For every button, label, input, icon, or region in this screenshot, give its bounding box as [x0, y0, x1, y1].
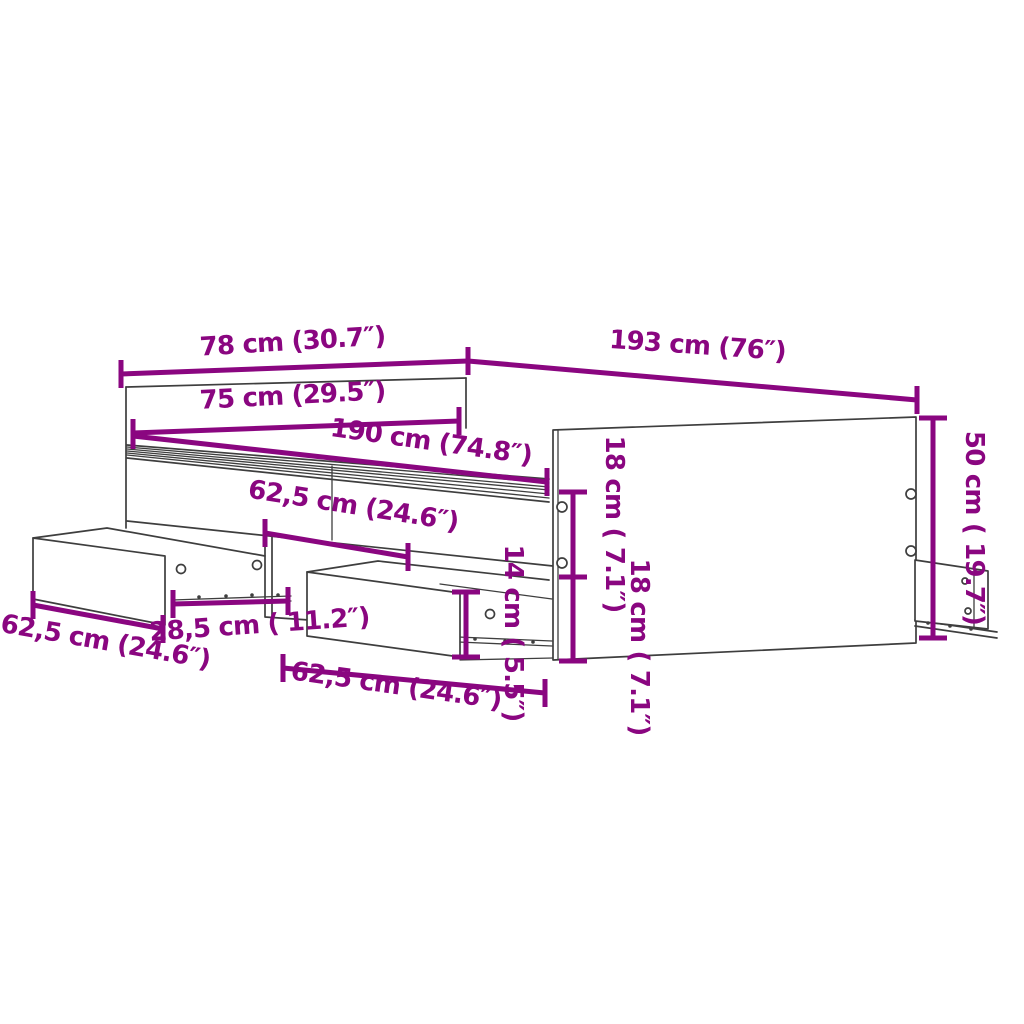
- rail-screw: [926, 621, 930, 625]
- rail-screw: [969, 627, 973, 631]
- dim-label-upper-drawer-width: 62,5 cm (24.6″): [246, 475, 460, 538]
- dim-label-inner-width: 75 cm (29.5″): [199, 376, 386, 416]
- dim-line-frame-length: [468, 361, 917, 400]
- runner-screw: [276, 593, 280, 597]
- runner-screw: [531, 640, 535, 644]
- rail-screw: [948, 624, 952, 628]
- bed-frame-diagram: 78 cm (30.7″) 193 cm (76″) 75 cm (29.5″)…: [0, 0, 1024, 1024]
- dim-line-headboard-width: [121, 361, 468, 374]
- runner-screw: [224, 594, 228, 598]
- product-dimension-diagram: 78 cm (30.7″) 193 cm (76″) 75 cm (29.5″)…: [0, 0, 1024, 1024]
- dim-label-under-bed-height: 18 cm ( 7.1″): [624, 559, 654, 736]
- runner-screw: [473, 637, 477, 641]
- assembly-hole: [557, 502, 567, 512]
- dim-label-frame-length: 193 cm (76″): [608, 325, 787, 367]
- left-drawer-front: [33, 538, 165, 625]
- assembly-hole: [557, 558, 567, 568]
- center-drawer-hole: [486, 610, 495, 619]
- dim-label-lower-drawer-width: 62,5 cm (24.6″): [289, 656, 503, 715]
- dim-label-drawer-front-height: 14 cm ( 5.5″): [498, 545, 528, 722]
- runner-screw: [197, 595, 201, 599]
- dim-line-upper-drawer-width: [265, 533, 408, 557]
- left-drawer-hole: [253, 561, 262, 570]
- runner-screw: [250, 593, 254, 597]
- dim-line-drawer-depth: [173, 601, 288, 604]
- dim-label-headboard-width: 78 cm (30.7″): [199, 321, 386, 362]
- assembly-hole: [906, 546, 916, 556]
- assembly-hole: [906, 489, 916, 499]
- left-drawer-hole: [177, 565, 186, 574]
- dim-label-footboard-height: 50 cm ( 19.7″): [959, 431, 989, 625]
